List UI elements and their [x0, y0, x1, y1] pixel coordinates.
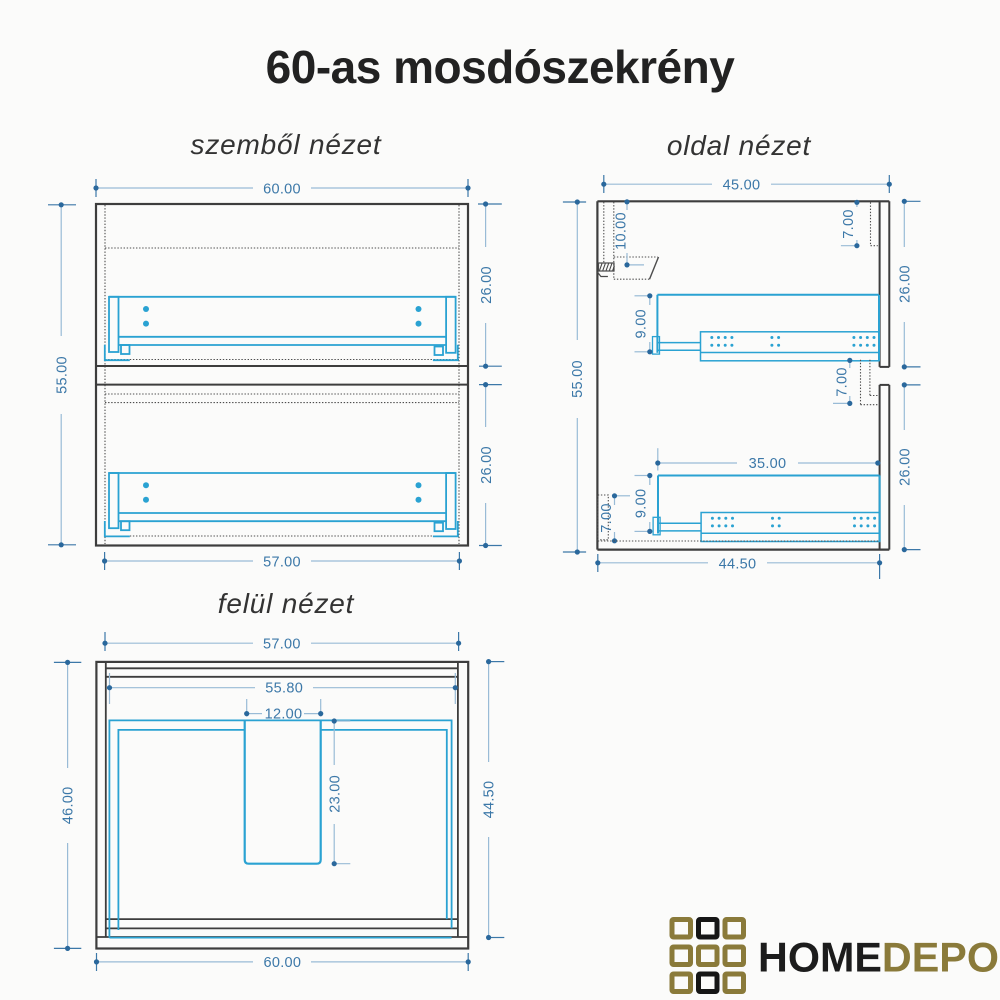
svg-text:44.50: 44.50 [719, 556, 757, 572]
svg-text:55.00: 55.00 [55, 356, 71, 394]
svg-text:7.00: 7.00 [835, 367, 851, 396]
svg-text:60.00: 60.00 [264, 955, 302, 971]
svg-text:45.00: 45.00 [723, 178, 761, 194]
svg-text:55.80: 55.80 [265, 681, 303, 697]
svg-text:12.00: 12.00 [265, 707, 303, 723]
svg-text:26.00: 26.00 [898, 448, 914, 486]
svg-text:60-as mosdószekrény: 60-as mosdószekrény [266, 41, 736, 93]
svg-text:57.00: 57.00 [263, 637, 301, 653]
svg-text:35.00: 35.00 [749, 456, 787, 472]
svg-text:26.00: 26.00 [479, 266, 495, 304]
svg-text:7.00: 7.00 [599, 503, 615, 532]
svg-text:felül nézet: felül nézet [218, 588, 355, 619]
svg-text:44.50: 44.50 [482, 781, 498, 819]
svg-text:7.00: 7.00 [841, 209, 857, 238]
svg-text:26.00: 26.00 [479, 446, 495, 484]
svg-text:46.00: 46.00 [61, 787, 77, 825]
svg-text:60.00: 60.00 [263, 182, 301, 198]
svg-text:23.00: 23.00 [328, 775, 344, 813]
svg-text:55.00: 55.00 [570, 360, 586, 398]
svg-text:9.00: 9.00 [634, 309, 650, 338]
svg-text:9.00: 9.00 [634, 489, 650, 518]
svg-text:oldal nézet: oldal nézet [667, 130, 812, 161]
svg-text:26.00: 26.00 [898, 265, 914, 303]
svg-text:HOMEDEPO: HOMEDEPO [758, 935, 999, 981]
svg-text:10.00: 10.00 [614, 212, 630, 250]
svg-text:57.00: 57.00 [263, 555, 301, 571]
svg-text:szemből nézet: szemből nézet [191, 129, 382, 160]
